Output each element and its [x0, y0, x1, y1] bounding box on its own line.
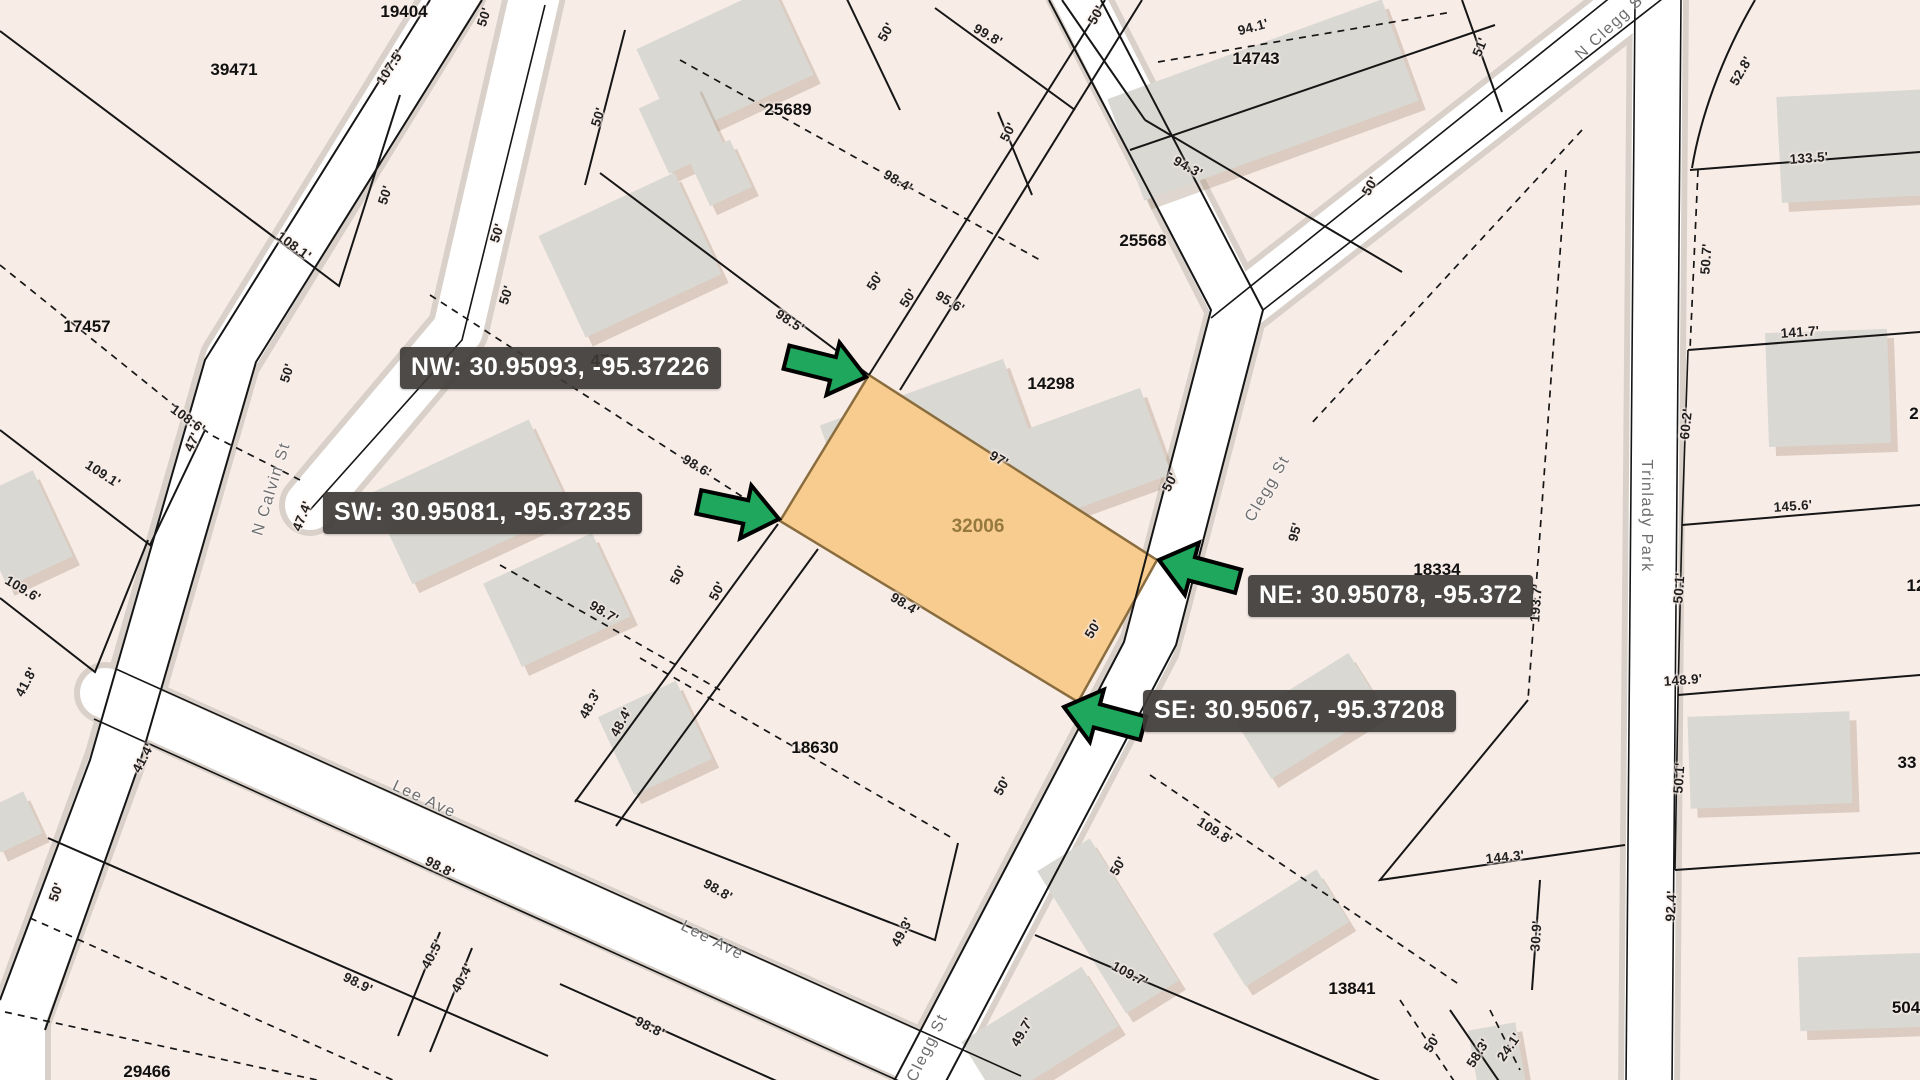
coordinate-label-ne: NE: 30.95078, -95.372 [1248, 575, 1533, 617]
parcel-number-partial: 12 [1907, 576, 1920, 596]
dimension-label: 145.6' [1773, 497, 1813, 515]
parcel-number: 39471 [210, 60, 257, 80]
coordinate-label-nw: NW: 30.95093, -95.37226 [400, 347, 721, 389]
parcel-map-canvas[interactable]: 107.5'108.1'108.6'50'50'50'50'50'50'47'1… [0, 0, 1920, 1080]
parcel-number-partial: 33 [1898, 753, 1917, 773]
dimension-label: 50.1' [1670, 572, 1687, 604]
parcel-number: 25689 [764, 100, 811, 120]
parcel-number-partial: 2 [1909, 404, 1918, 424]
parcel-number-partial: 504 [1892, 998, 1920, 1018]
map-base-layer [0, 0, 1920, 1080]
dimension-label: 30.9' [1527, 920, 1544, 952]
parcel-number: 14298 [1027, 374, 1074, 394]
dimension-label: 50.7' [1697, 243, 1714, 275]
dimension-label: 60.2' [1677, 408, 1695, 440]
parcel-number: 19404 [380, 2, 427, 22]
highlighted-parcel-number: 32006 [952, 516, 1005, 538]
coordinate-label-sw: SW: 30.95081, -95.37235 [323, 492, 642, 534]
parcel-number: 29466 [123, 1062, 170, 1080]
dimension-label: 148.9' [1663, 671, 1703, 689]
parcel-number: 25568 [1119, 231, 1166, 251]
dimension-label: 133.5' [1789, 149, 1829, 167]
parcel-number: 14743 [1232, 49, 1279, 69]
coordinate-label-se: SE: 30.95067, -95.37208 [1143, 690, 1456, 732]
street-name: Trinlady Park [1637, 459, 1655, 572]
dimension-label: 141.7' [1780, 323, 1820, 341]
dimension-label: 50.1' [1670, 762, 1687, 794]
parcel-number: 13841 [1328, 979, 1375, 999]
dimension-label: 92.4' [1663, 890, 1680, 922]
parcel-number: 18630 [791, 738, 838, 758]
parcel-number: 17457 [63, 317, 110, 337]
